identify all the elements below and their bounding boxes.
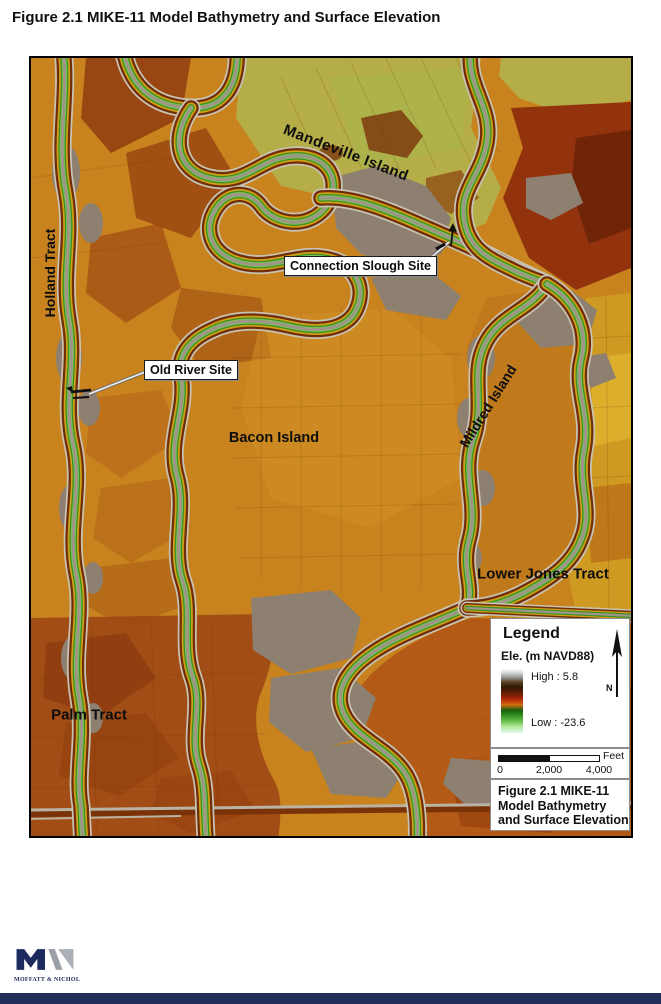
elevation-color-ramp <box>501 669 523 733</box>
north-arrow-icon: N <box>606 629 626 705</box>
page-title: Figure 2.1 MIKE-11 Model Bathymetry and … <box>12 9 440 26</box>
caption-line-1: Figure 2.1 MIKE-11 <box>498 784 629 799</box>
bathymetry-map: Holland Tract Mandeville Island Bacon Is… <box>29 56 633 838</box>
callout-connection-slough-site: Connection Slough Site <box>284 256 437 276</box>
north-label: N <box>606 683 613 693</box>
scale-bar-filled-half <box>499 756 550 761</box>
scale-tick-0: 0 <box>497 764 503 776</box>
logo-text: MOFFATT & NICHOL <box>14 977 84 983</box>
legend-title: Legend <box>503 625 560 643</box>
jones-north-channel <box>467 608 631 616</box>
map-label-holland-tract: Holland Tract <box>42 229 58 318</box>
legend-subtitle: Ele. (m NAVD88) <box>501 649 594 663</box>
legend: Legend Ele. (m NAVD88) High : 5.8 Low : … <box>490 618 630 748</box>
report-page: Figure 2.1 MIKE-11 Model Bathymetry and … <box>0 0 661 1004</box>
logo-mark-icon <box>14 948 76 971</box>
scale-bar: Feet 0 2,000 4,000 <box>490 748 630 779</box>
footer-bar <box>0 993 661 1004</box>
map-label-palm-tract: Palm Tract <box>51 707 127 724</box>
caption-line-2: Model Bathymetry <box>498 799 629 814</box>
map-label-lower-jones-tract: Lower Jones Tract <box>477 566 609 583</box>
figure-caption: Figure 2.1 MIKE-11 Model Bathymetry and … <box>490 779 630 831</box>
caption-line-3: and Surface Elevation <box>498 813 629 828</box>
moffatt-nichol-logo: MOFFATT & NICHOL <box>14 948 84 983</box>
legend-low-label: Low : -23.6 <box>531 717 585 729</box>
legend-high-label: High : 5.8 <box>531 671 578 683</box>
scale-bar-graphic <box>498 755 600 762</box>
callout-old-river-site: Old River Site <box>144 360 238 380</box>
scale-tick-2000: 2,000 <box>536 764 562 776</box>
scale-tick-4000: 4,000 <box>586 764 612 776</box>
map-label-bacon-island: Bacon Island <box>229 430 319 446</box>
scale-unit-label: Feet <box>603 750 624 762</box>
